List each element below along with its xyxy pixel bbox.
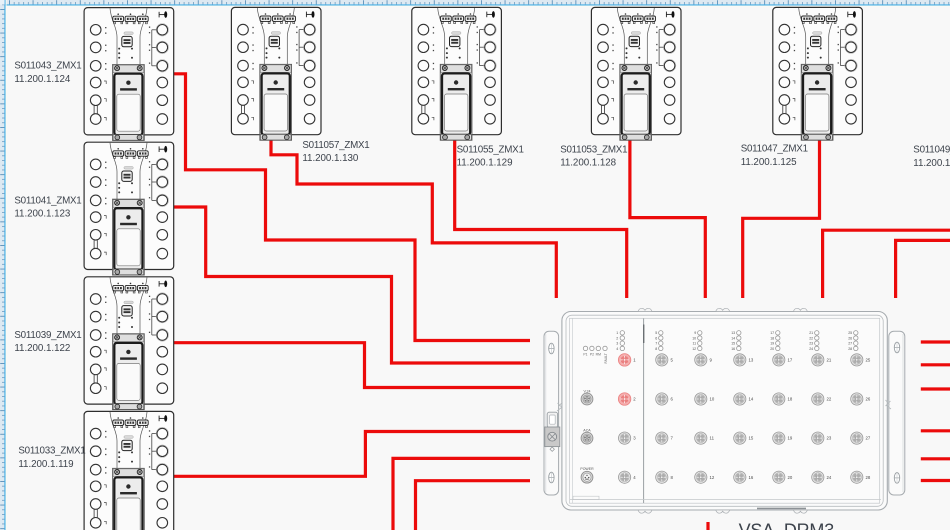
svg-text:3: 3	[616, 342, 618, 346]
svg-text:RM: RM	[596, 352, 601, 356]
svg-text:S011055_ZMX1: S011055_ZMX1	[457, 145, 524, 156]
svg-text:11.200.1.126: 11.200.1.126	[913, 158, 950, 169]
svg-text:S011039_ZMX1: S011039_ZMX1	[14, 330, 81, 341]
svg-text:ACA: ACA	[583, 428, 591, 432]
svg-text:19: 19	[788, 436, 793, 441]
svg-text:14: 14	[731, 336, 735, 340]
svg-text:18: 18	[770, 336, 774, 340]
svg-text:11.200.1.130: 11.200.1.130	[302, 153, 358, 164]
svg-text:7: 7	[655, 342, 657, 346]
svg-text:S011047_ZMX1: S011047_ZMX1	[741, 144, 808, 155]
svg-text:1: 1	[616, 331, 618, 335]
svg-text:27: 27	[866, 436, 871, 441]
svg-text:9: 9	[694, 331, 696, 335]
svg-text:VSA_DRM3: VSA_DRM3	[739, 521, 835, 530]
svg-text:17: 17	[788, 358, 793, 363]
svg-text:26: 26	[866, 397, 871, 402]
svg-text:11.200.1.129: 11.200.1.129	[457, 158, 513, 169]
svg-text:24: 24	[827, 475, 832, 480]
svg-text:28: 28	[848, 347, 852, 351]
svg-text:S011041_ZMX1: S011041_ZMX1	[14, 195, 81, 206]
svg-text:20: 20	[770, 347, 774, 351]
svg-text:23: 23	[827, 436, 832, 441]
svg-text:FAULT: FAULT	[604, 353, 608, 363]
svg-text:17: 17	[770, 331, 774, 335]
svg-text:S011049_ZMX1: S011049_ZMX1	[913, 145, 950, 156]
svg-text:26: 26	[848, 336, 852, 340]
svg-text:5: 5	[655, 331, 657, 335]
svg-text:27: 27	[848, 342, 852, 346]
svg-text:16: 16	[731, 347, 735, 351]
svg-text:P2: P2	[590, 352, 594, 356]
svg-text:20: 20	[788, 475, 793, 480]
svg-text:14: 14	[749, 397, 754, 402]
svg-text:21: 21	[827, 358, 832, 363]
svg-text:18: 18	[788, 397, 793, 402]
svg-text:S011057_ZMX1: S011057_ZMX1	[302, 140, 369, 151]
svg-text:11.200.1.125: 11.200.1.125	[741, 157, 797, 168]
svg-text:15: 15	[731, 342, 735, 346]
svg-text:13: 13	[731, 331, 735, 335]
svg-text:21: 21	[809, 331, 813, 335]
svg-text:25: 25	[866, 358, 871, 363]
svg-text:22: 22	[827, 397, 832, 402]
svg-text:10: 10	[692, 336, 696, 340]
svg-text:11.200.1.123: 11.200.1.123	[14, 209, 70, 220]
svg-text:15: 15	[749, 436, 754, 441]
svg-text:19: 19	[770, 342, 774, 346]
svg-text:6: 6	[655, 336, 657, 340]
svg-text:16: 16	[749, 475, 754, 480]
svg-text:22: 22	[809, 336, 813, 340]
svg-text:12: 12	[710, 475, 715, 480]
svg-text:24: 24	[809, 347, 813, 351]
svg-text:11.200.1.128: 11.200.1.128	[560, 158, 616, 169]
svg-text:11: 11	[692, 342, 696, 346]
svg-text:S011053_ZMX1: S011053_ZMX1	[560, 145, 627, 156]
svg-text:4: 4	[616, 347, 618, 351]
svg-text:2: 2	[616, 336, 618, 340]
svg-text:11: 11	[710, 436, 715, 441]
svg-text:28: 28	[866, 475, 871, 480]
svg-text:23: 23	[809, 342, 813, 346]
svg-text:25: 25	[848, 331, 852, 335]
svg-text:S011033_ZMX1: S011033_ZMX1	[18, 446, 85, 457]
svg-text:10: 10	[710, 397, 715, 402]
svg-text:11.200.1.122: 11.200.1.122	[14, 343, 70, 354]
svg-text:13: 13	[749, 358, 754, 363]
svg-text:POWER: POWER	[580, 467, 594, 471]
svg-text:11.200.1.124: 11.200.1.124	[14, 74, 70, 85]
svg-text:11.200.1.119: 11.200.1.119	[18, 459, 73, 470]
svg-text:S011043_ZMX1: S011043_ZMX1	[14, 61, 81, 72]
svg-text:12: 12	[692, 347, 696, 351]
svg-text:P1: P1	[583, 352, 587, 356]
svg-text:8: 8	[655, 347, 657, 351]
svg-text:V.24: V.24	[583, 389, 590, 393]
